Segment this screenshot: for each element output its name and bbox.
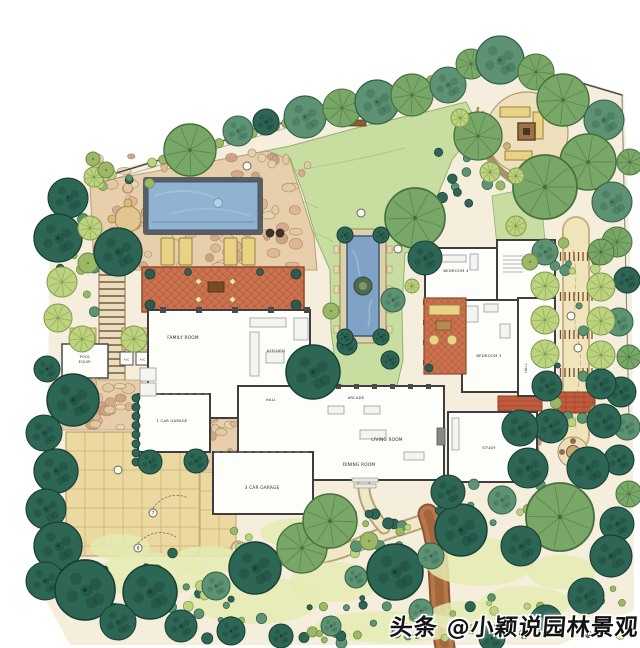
tree-dark <box>508 448 548 488</box>
tree-texture <box>592 384 598 390</box>
tree-center <box>355 576 357 578</box>
shrub <box>307 605 312 610</box>
tree-center <box>149 461 151 463</box>
shrub <box>370 620 376 626</box>
tree-texture <box>423 556 428 561</box>
tree-dark <box>586 369 616 399</box>
label-arcade: ARCADE <box>348 395 365 400</box>
flagstone <box>231 171 243 178</box>
tree-texture <box>453 87 460 94</box>
tree-texture <box>171 626 177 632</box>
tree-texture <box>39 369 44 374</box>
tree-center <box>44 580 47 583</box>
tree-center <box>459 117 461 119</box>
tree-center <box>620 391 622 393</box>
tree-texture <box>326 620 330 624</box>
tree-center <box>311 370 315 374</box>
keynote <box>567 312 575 320</box>
tree-texture <box>258 122 263 127</box>
tree-texture <box>45 458 54 467</box>
chair <box>108 215 116 223</box>
shrub <box>321 637 327 643</box>
label-study: STUDY <box>482 445 496 450</box>
chair <box>570 438 576 444</box>
tree-texture <box>402 575 413 586</box>
tree-center <box>515 175 517 177</box>
tree-lightg <box>531 340 559 368</box>
tree-dark <box>286 345 340 399</box>
fixture <box>452 418 459 450</box>
patio-bench <box>500 107 530 117</box>
tree-med <box>385 188 445 248</box>
keynote-circle <box>243 162 251 170</box>
tree-texture <box>506 501 512 507</box>
tree-dark <box>269 624 293 648</box>
shrub <box>148 158 157 167</box>
tree-lightg <box>405 279 419 293</box>
tree-texture <box>242 133 248 139</box>
shrub <box>343 605 349 611</box>
garage-hedge <box>132 394 140 402</box>
tree-dark <box>34 449 78 493</box>
tree-texture <box>384 360 388 364</box>
tree-texture <box>377 230 380 233</box>
shrub <box>578 326 588 336</box>
flagstone <box>289 206 300 215</box>
label-1-car-garage: 1 CAR GARAGE <box>156 418 187 423</box>
tree-texture <box>600 202 608 210</box>
tree-center <box>46 368 48 370</box>
patio-chair <box>447 335 457 345</box>
tree-texture <box>123 624 130 631</box>
tree-med2 <box>476 36 524 84</box>
keynote: 7 <box>149 509 157 517</box>
tree-center <box>67 197 70 200</box>
shrub <box>307 627 317 637</box>
flagstone <box>116 424 125 430</box>
shrub <box>183 601 193 611</box>
tree-texture <box>537 252 542 257</box>
tree-texture <box>80 403 90 413</box>
tree-texture <box>33 581 41 589</box>
tree-center <box>501 499 503 501</box>
tree-lightg <box>587 307 615 335</box>
shrub <box>462 168 471 177</box>
tree-texture <box>440 482 447 489</box>
tree-texture <box>275 629 280 634</box>
tree-texture <box>425 548 430 553</box>
flagstone <box>298 170 305 177</box>
tree-center <box>447 84 450 87</box>
tree-texture <box>320 375 331 386</box>
shrub <box>555 363 560 368</box>
tree-texture <box>33 433 40 440</box>
tree-dark <box>138 450 162 474</box>
flagstone <box>90 420 101 428</box>
shrub <box>363 521 369 527</box>
tree-lightg <box>121 326 147 352</box>
tree-texture <box>621 272 626 277</box>
fixture <box>328 406 344 414</box>
tree-texture <box>488 46 498 56</box>
brick-paving <box>498 396 542 411</box>
tree-center <box>544 319 546 321</box>
fixture <box>294 318 308 340</box>
shrub <box>576 303 582 309</box>
chair <box>559 449 565 455</box>
tree-lightg <box>78 216 102 240</box>
tree-med <box>164 124 216 176</box>
tree-med2 <box>202 572 230 600</box>
tree-branch <box>325 108 342 109</box>
tree-texture <box>185 628 191 634</box>
tree-texture <box>56 198 64 206</box>
shrub <box>359 601 367 609</box>
tree-dark <box>373 329 389 345</box>
tree-center <box>600 354 602 356</box>
garage-hedge <box>132 449 140 457</box>
tree-texture <box>144 455 149 460</box>
tree-dark <box>229 542 281 594</box>
shrub <box>383 518 394 529</box>
tree-center <box>498 58 501 61</box>
tree-texture <box>46 224 56 234</box>
flagstone <box>114 383 126 388</box>
site-plan-svg: 78POOLEQUIP.A/CA/CFAMILY ROOMKITCHENHALL… <box>0 0 640 648</box>
flagstone <box>211 244 221 253</box>
planter <box>185 269 192 276</box>
tree-center <box>71 398 75 402</box>
shrub <box>618 599 625 606</box>
tree-texture <box>284 637 289 642</box>
tree-center <box>344 234 346 236</box>
planter <box>257 269 264 276</box>
tree-texture <box>62 473 71 482</box>
stepping-stone <box>248 149 256 157</box>
tree-center <box>368 540 370 542</box>
tree-texture <box>396 301 401 306</box>
tree-center <box>546 385 548 387</box>
tree-center <box>188 148 192 152</box>
tree-texture <box>392 361 396 365</box>
tree-dark <box>184 449 208 473</box>
tree-dark <box>48 178 88 218</box>
entry-step <box>354 484 376 488</box>
tree-texture <box>106 238 116 248</box>
tree-texture <box>239 569 249 579</box>
shrub <box>126 175 132 181</box>
tree-center <box>600 251 602 253</box>
tree-dark <box>435 504 487 556</box>
brick-paving <box>557 392 595 413</box>
patio-chair <box>429 335 439 345</box>
tree-texture <box>310 119 318 127</box>
tree-texture <box>377 332 380 335</box>
tree-center <box>489 171 491 173</box>
tree-center <box>195 460 197 462</box>
shrub <box>360 595 365 600</box>
label-dining-room: DINING ROOM <box>343 462 376 468</box>
label-hall: HALL <box>266 397 277 402</box>
tree-center <box>237 130 239 132</box>
tree-center <box>558 515 563 520</box>
tree-texture <box>269 123 274 128</box>
tree-center <box>618 321 620 323</box>
tree-texture <box>57 401 67 411</box>
tree-texture <box>617 204 625 212</box>
tree-center <box>411 285 413 287</box>
fire-pit-center <box>523 128 530 135</box>
tree-lightg <box>531 306 559 334</box>
shrub <box>202 633 213 644</box>
shrub <box>496 181 505 190</box>
fixture <box>404 452 424 460</box>
tree-texture <box>209 578 215 584</box>
shrub <box>396 527 404 535</box>
tree-texture <box>526 548 534 556</box>
tree-center <box>56 236 59 239</box>
tree-dark <box>501 526 541 566</box>
tree-texture <box>64 240 74 250</box>
fountain-center <box>359 282 367 290</box>
tree-texture <box>429 260 436 267</box>
tree-center <box>629 161 631 163</box>
tree-texture <box>594 108 602 116</box>
tree-med2 <box>488 486 516 514</box>
shrub <box>434 148 442 156</box>
tree-center <box>328 519 332 523</box>
patio-pot <box>504 143 511 150</box>
tree-texture <box>606 524 613 531</box>
flagstone <box>304 162 311 169</box>
tree-dark <box>502 410 538 446</box>
tree-center <box>411 94 414 97</box>
tree-dark <box>567 447 609 489</box>
shrub <box>558 238 569 249</box>
tree-center <box>380 336 382 338</box>
tree-texture <box>199 462 204 467</box>
tree-texture <box>495 492 501 498</box>
keynote-circle <box>114 466 122 474</box>
tree-dark <box>431 475 465 509</box>
tree-texture <box>518 456 526 464</box>
tree-center <box>550 425 552 427</box>
planter <box>276 229 284 237</box>
tree-center <box>375 100 378 103</box>
keynote <box>574 344 582 352</box>
tree-texture <box>468 533 478 543</box>
tree-texture <box>36 570 44 578</box>
tree-texture <box>417 248 424 255</box>
pilaster <box>160 307 166 313</box>
landscape-plan-image: 78POOLEQUIP.A/CA/CFAMILY ROOMKITCHENHALL… <box>0 0 640 648</box>
keynote-number: 8 <box>137 546 140 552</box>
tree-center <box>586 160 590 164</box>
terrace-table <box>208 282 224 292</box>
tree-center <box>519 427 522 430</box>
tree-texture <box>207 586 213 592</box>
tree-texture <box>555 428 562 435</box>
tree-center <box>265 121 267 123</box>
tree-center <box>626 279 628 281</box>
tree-texture <box>601 544 609 552</box>
tree-texture <box>109 612 116 619</box>
keynote-circle <box>357 209 365 217</box>
tree-center <box>133 338 135 340</box>
tree-texture <box>66 591 78 603</box>
tree-center <box>600 383 602 385</box>
tree-dark <box>408 241 442 275</box>
tree-texture <box>540 377 546 383</box>
label-ac: A/C <box>140 358 146 362</box>
tree-texture <box>621 526 628 533</box>
tree-texture <box>594 375 600 381</box>
tree-center <box>105 169 107 171</box>
fixture <box>140 383 156 396</box>
shrub <box>465 199 473 207</box>
shrub <box>168 548 178 558</box>
tree-center <box>230 630 232 632</box>
tree-texture <box>231 122 237 128</box>
tree-texture <box>341 345 345 349</box>
tree-center <box>603 420 605 422</box>
tree-med <box>513 155 577 219</box>
tree-texture <box>591 598 598 605</box>
tree-texture <box>51 511 59 519</box>
shrub <box>566 261 572 267</box>
tree-med2 <box>592 182 632 222</box>
tree-center <box>459 528 463 532</box>
fixture <box>140 368 156 381</box>
tree-texture <box>190 454 195 459</box>
shrub <box>245 534 252 541</box>
tree-dark <box>337 329 353 345</box>
tree-texture <box>551 388 557 394</box>
tree-texture <box>623 462 629 468</box>
tree-center <box>603 119 606 122</box>
arcade-column <box>408 384 413 389</box>
tree-center <box>87 262 89 264</box>
tree-texture <box>383 338 386 341</box>
tree-med2 <box>284 96 326 138</box>
tree-med2 <box>321 616 341 636</box>
shrub <box>316 630 322 636</box>
arcade-column <box>426 384 431 389</box>
tree-texture <box>376 337 379 340</box>
tree-center <box>447 491 449 493</box>
tree-texture <box>42 471 51 480</box>
tree-texture <box>525 430 532 437</box>
tree-texture <box>41 361 46 366</box>
fixture <box>266 352 284 363</box>
pilaster <box>196 307 202 313</box>
tree-dark <box>26 415 62 451</box>
flagstone <box>125 403 132 411</box>
tree-med2 <box>223 116 253 146</box>
tree-center <box>81 338 83 340</box>
tree-center <box>413 216 417 220</box>
shrub <box>610 586 616 592</box>
tree-center <box>341 107 344 110</box>
tree-texture <box>349 577 353 581</box>
tree-center <box>148 590 152 594</box>
tree-texture <box>222 631 228 637</box>
tree-med <box>537 74 589 126</box>
tree-dark <box>34 214 82 262</box>
tree-med2 <box>418 543 444 569</box>
tree-texture <box>592 120 600 128</box>
swimming-pool <box>148 182 258 230</box>
tree-center <box>424 257 426 259</box>
patio-bench <box>505 151 532 160</box>
tree-branch <box>489 172 490 181</box>
tree-texture <box>619 280 624 285</box>
tree-texture <box>609 122 617 130</box>
tree-texture <box>448 515 458 525</box>
tree-center <box>215 585 217 587</box>
tree-center <box>380 234 382 236</box>
shrub <box>145 178 155 188</box>
flagstone <box>215 428 227 435</box>
shrub <box>490 520 496 526</box>
fixture <box>470 254 478 270</box>
tree-texture <box>73 200 81 208</box>
tree-center <box>83 588 87 592</box>
tree-texture <box>386 355 390 359</box>
watermark-text: 头条 @小颖说园林景观 <box>388 608 640 642</box>
tree-texture <box>485 60 495 70</box>
garage-hedge <box>132 431 140 439</box>
tree-dark <box>587 404 621 438</box>
tree-lightg <box>508 168 524 184</box>
tree-texture <box>341 230 344 233</box>
house-garage-1 <box>138 394 210 452</box>
keynote-circle <box>574 344 582 352</box>
tree-center <box>54 469 57 472</box>
tree-med <box>588 239 614 265</box>
planter <box>291 269 301 279</box>
tree-texture <box>341 332 344 335</box>
flagstone <box>115 394 126 402</box>
keynote-number: 7 <box>152 511 155 517</box>
edge-pad <box>387 246 392 253</box>
tree-texture <box>157 595 168 606</box>
flagstone <box>267 248 280 257</box>
tree-olive <box>360 532 378 550</box>
tree-texture <box>260 114 265 119</box>
tree-texture <box>533 470 541 478</box>
label-ac: A/C <box>124 358 130 362</box>
tree-center <box>300 546 304 550</box>
tree-dark <box>165 610 197 642</box>
tree-texture <box>608 423 615 430</box>
label-bedroom-3: BEDROOM 3 <box>476 353 502 358</box>
shrub <box>569 268 576 275</box>
flagstone <box>282 183 296 192</box>
tree-dark <box>373 227 389 243</box>
tree-center <box>393 570 397 574</box>
tree-center <box>616 241 618 243</box>
tree-center <box>527 467 530 470</box>
shrub <box>228 596 234 602</box>
pilaster <box>304 307 310 313</box>
tree-texture <box>414 258 421 265</box>
tree-texture <box>612 451 618 457</box>
tree-texture <box>300 356 311 367</box>
tree-texture <box>347 236 350 239</box>
tree-texture <box>43 238 53 248</box>
tree-lightg <box>69 326 95 352</box>
